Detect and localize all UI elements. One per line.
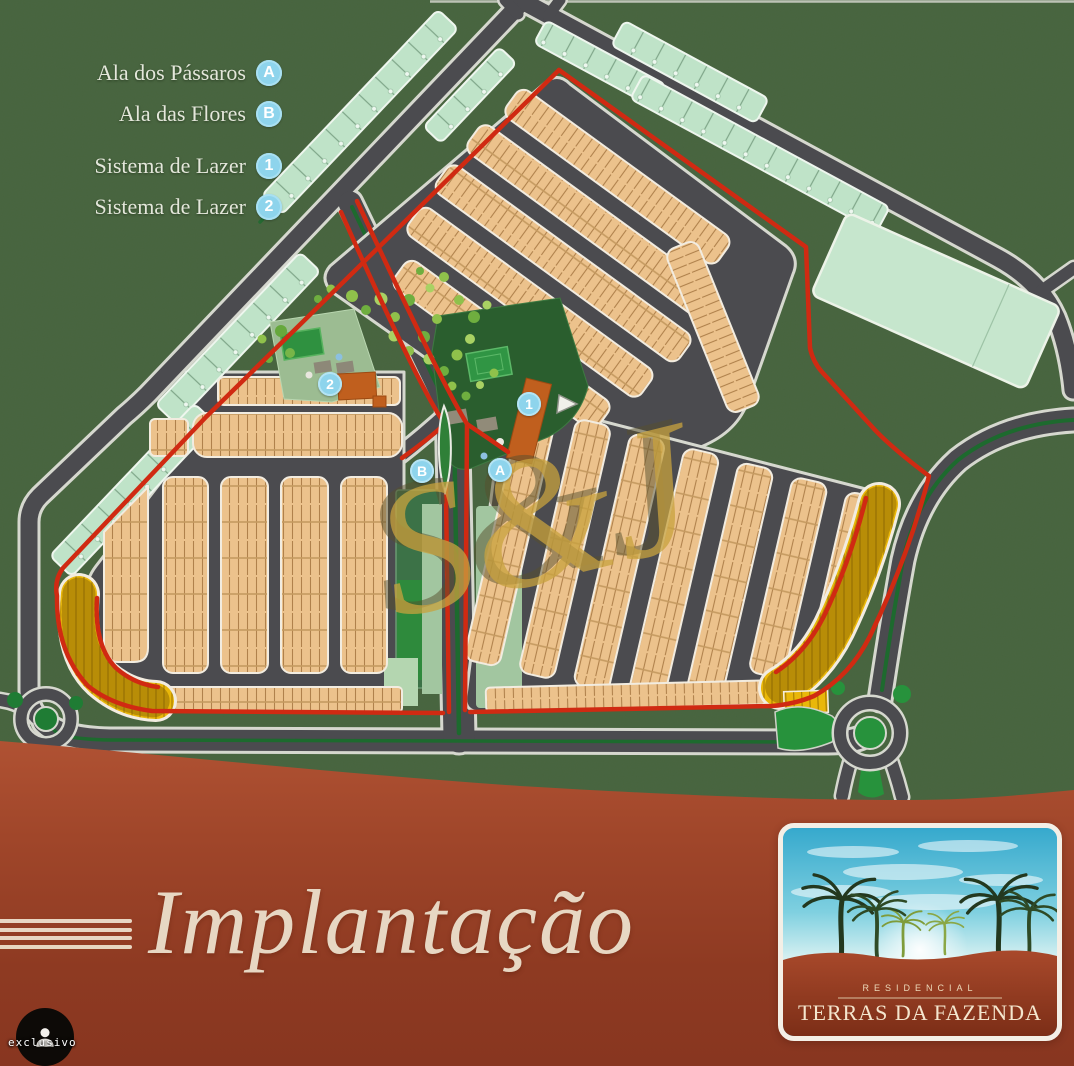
legend-item-ala-passaros: Ala dos Pássaros A xyxy=(0,60,282,86)
title-stripes xyxy=(0,919,132,953)
legend-item-ala-flores: Ala das Flores B xyxy=(0,101,282,127)
map-marker-b: B xyxy=(410,459,434,483)
legend-item-lazer-1: Sistema de Lazer 1 xyxy=(0,153,282,179)
legend-item-lazer-2: Sistema de Lazer 2 xyxy=(0,194,282,220)
roundabout-left xyxy=(7,692,83,744)
map-marker-a: A xyxy=(488,458,512,482)
legend-badge-a: A xyxy=(256,60,282,86)
legend-badge-1: 1 xyxy=(256,153,282,179)
logo-card: RESIDENCIAL TERRAS DA FAZENDA xyxy=(778,823,1062,1041)
logo-artwork: RESIDENCIAL TERRAS DA FAZENDA xyxy=(783,828,1057,1036)
legend-label: Ala das Flores xyxy=(119,101,246,127)
map-marker-2: 2 xyxy=(318,372,342,396)
page-title: Implantação xyxy=(148,874,635,971)
logo-name: TERRAS DA FAZENDA xyxy=(798,1000,1042,1025)
legend-badge-b: B xyxy=(256,101,282,127)
legend-badge-2: 2 xyxy=(256,194,282,220)
legend-label: Sistema de Lazer xyxy=(95,153,247,179)
site-plan-page: S&J S&J Ala dos Pássaros A Ala das Flore… xyxy=(0,0,1074,1066)
map-marker-1: 1 xyxy=(517,392,541,416)
corner-watermark-label: exclusivo xyxy=(8,1036,77,1049)
logo-tagline: RESIDENCIAL xyxy=(862,983,977,993)
legend-label: Ala dos Pássaros xyxy=(97,60,246,86)
legend-label: Sistema de Lazer xyxy=(95,194,247,220)
